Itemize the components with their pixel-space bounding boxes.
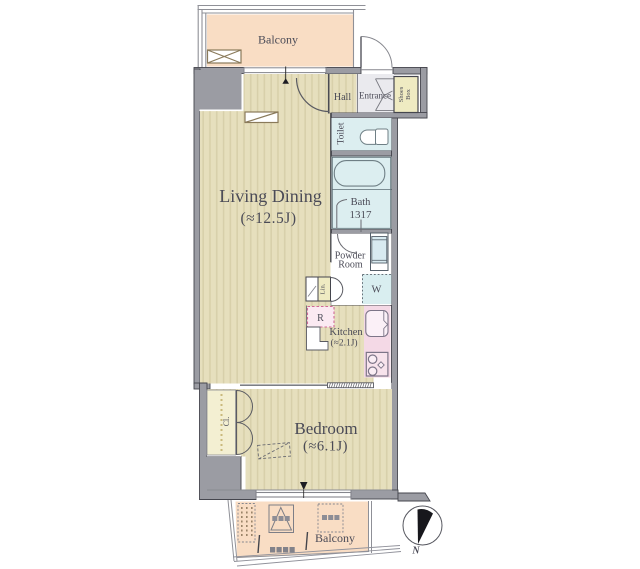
svg-text:R: R [317,313,324,324]
svg-text:Cl.: Cl. [222,417,231,427]
svg-text:W: W [372,285,382,296]
svg-text:(≈2.1J): (≈2.1J) [330,338,357,349]
svg-text:Kitchen: Kitchen [329,327,363,338]
svg-text:Room: Room [338,260,363,271]
svg-text:Lin.: Lin. [320,283,327,294]
svg-text:Bath: Bath [351,197,372,208]
svg-text:Entrance: Entrance [359,91,391,101]
svg-text:Balcony: Balcony [315,531,355,545]
svg-text:Balcony: Balcony [258,33,298,47]
svg-text:1317: 1317 [350,209,373,221]
svg-text:(≈12.5J): (≈12.5J) [241,210,297,227]
svg-text:Box: Box [405,88,412,100]
svg-text:Living Dining: Living Dining [219,186,322,206]
svg-text:Bedroom: Bedroom [294,419,357,438]
svg-text:Hall: Hall [334,92,351,103]
svg-text:N: N [411,546,420,557]
svg-text:Shoes: Shoes [398,86,405,102]
svg-text:(≈6.1J): (≈6.1J) [303,439,348,455]
svg-text:Toilet: Toilet [337,122,347,144]
